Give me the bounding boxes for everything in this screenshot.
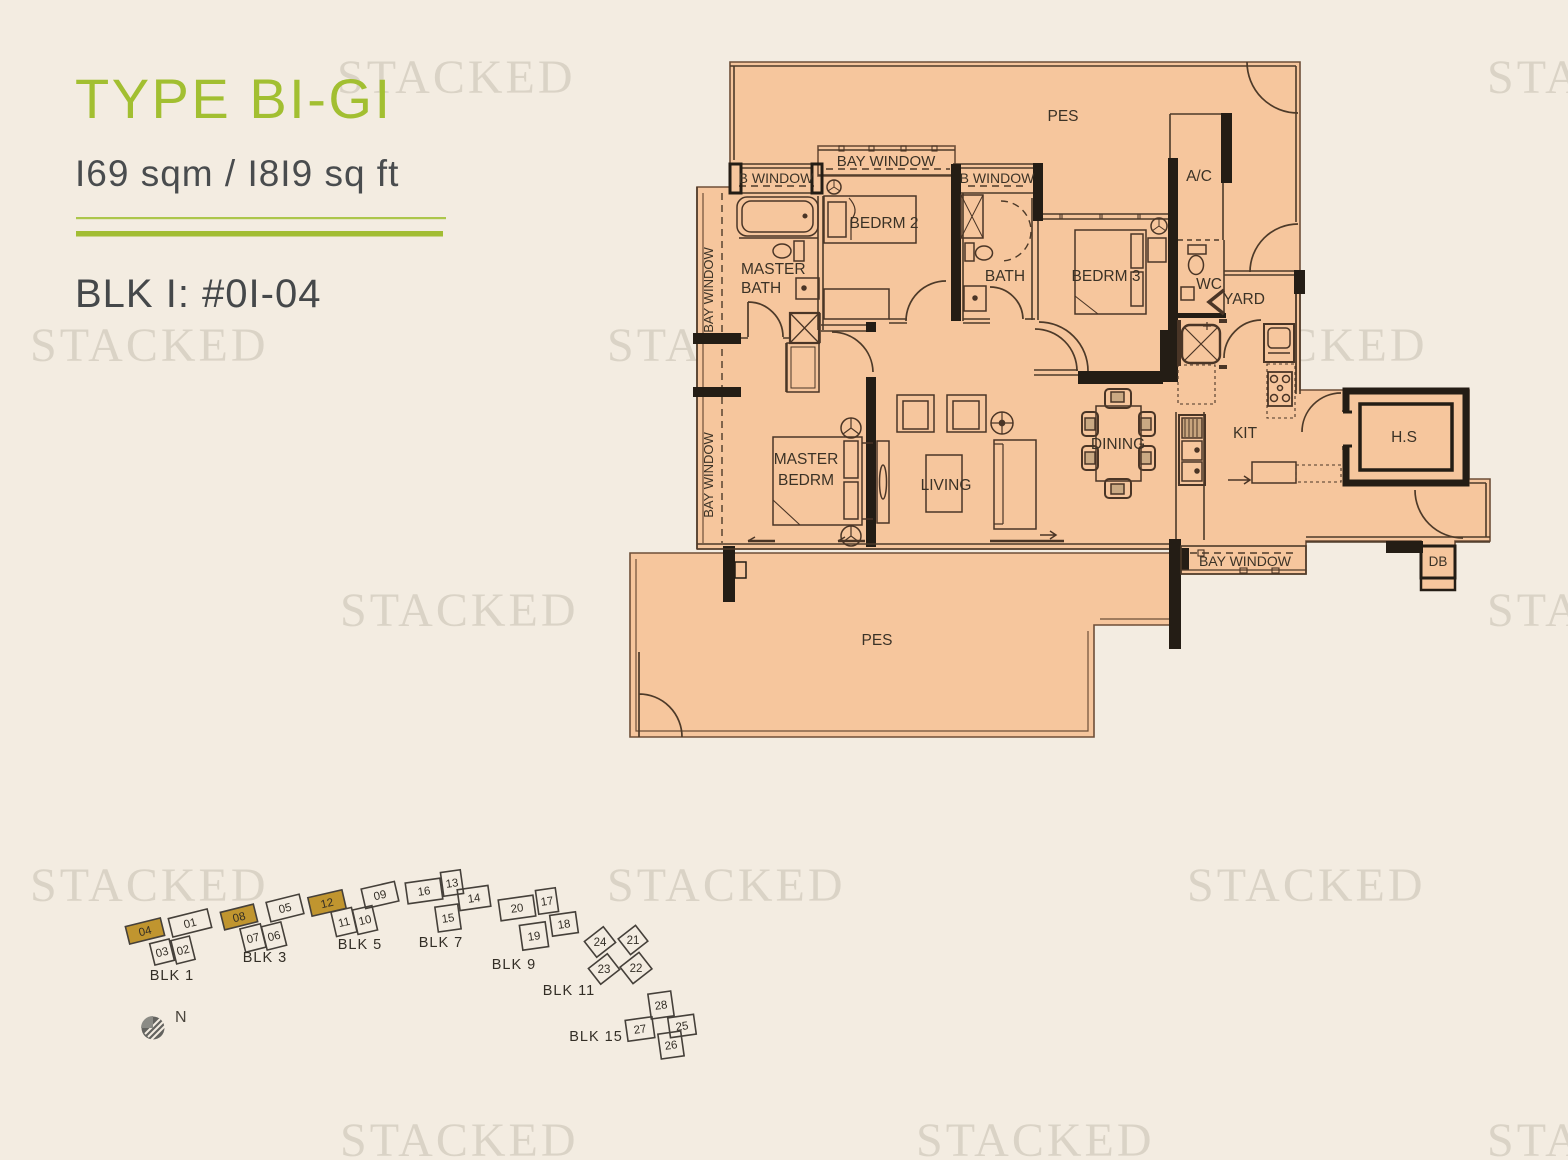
svg-text:WC: WC — [1196, 276, 1222, 293]
svg-text:27: 27 — [633, 1023, 647, 1037]
svg-text:STACKED: STACKED — [1487, 1114, 1568, 1160]
svg-text:10: 10 — [358, 914, 373, 929]
svg-text:STACKED: STACKED — [916, 1114, 1155, 1160]
svg-text:20: 20 — [510, 902, 524, 916]
svg-text:09: 09 — [373, 889, 388, 904]
svg-text:STACKED: STACKED — [1487, 51, 1568, 104]
svg-text:15: 15 — [441, 912, 455, 926]
svg-text:24: 24 — [594, 937, 607, 949]
svg-text:11: 11 — [337, 916, 351, 930]
svg-text:BAY WINDOW: BAY WINDOW — [1199, 553, 1292, 569]
svg-text:BEDRM 3: BEDRM 3 — [1072, 268, 1141, 285]
svg-text:07: 07 — [246, 932, 261, 947]
svg-text:02: 02 — [176, 944, 191, 959]
svg-text:BEDRM: BEDRM — [778, 472, 834, 489]
svg-text:01: 01 — [183, 917, 198, 932]
svg-text:21: 21 — [627, 935, 640, 947]
svg-text:05: 05 — [278, 902, 293, 917]
svg-text:A/C: A/C — [1186, 168, 1212, 185]
svg-text:06: 06 — [267, 930, 282, 945]
svg-text:KIT: KIT — [1233, 425, 1258, 442]
svg-text:STACKED: STACKED — [1187, 859, 1426, 912]
svg-text:B WINDOW: B WINDOW — [739, 170, 814, 186]
svg-text:STACKED: STACKED — [30, 319, 269, 372]
svg-text:STACKED: STACKED — [607, 859, 846, 912]
svg-text:STACKED: STACKED — [340, 584, 579, 637]
svg-text:BLK I: #0I-04: BLK I: #0I-04 — [75, 272, 321, 316]
svg-text:26: 26 — [664, 1039, 678, 1053]
svg-text:13: 13 — [445, 877, 459, 891]
svg-text:19: 19 — [527, 930, 541, 944]
svg-text:BLK 7: BLK 7 — [419, 935, 464, 951]
svg-text:22: 22 — [630, 963, 643, 975]
svg-text:PES: PES — [861, 632, 892, 649]
svg-text:BLK 15: BLK 15 — [569, 1029, 623, 1045]
svg-text:16: 16 — [417, 885, 431, 899]
svg-text:BAY WINDOW: BAY WINDOW — [701, 247, 716, 333]
svg-text:14: 14 — [467, 892, 482, 906]
svg-text:BAY WINDOW: BAY WINDOW — [837, 153, 936, 170]
svg-text:DB: DB — [1429, 554, 1448, 569]
svg-text:STACKED: STACKED — [340, 1114, 579, 1160]
svg-text:DINING: DINING — [1091, 436, 1145, 453]
svg-text:BEDRM 2: BEDRM 2 — [850, 215, 919, 232]
svg-text:TYPE BI-GI: TYPE BI-GI — [75, 67, 393, 130]
svg-text:STACKED: STACKED — [1487, 584, 1568, 637]
svg-text:STACKED: STACKED — [30, 859, 269, 912]
svg-text:MASTER: MASTER — [774, 451, 839, 468]
svg-text:MASTER: MASTER — [741, 261, 806, 278]
svg-text:18: 18 — [557, 918, 571, 932]
svg-text:BATH: BATH — [741, 280, 781, 297]
svg-text:23: 23 — [598, 964, 611, 976]
svg-text:BAY WINDOW: BAY WINDOW — [701, 432, 716, 518]
svg-text:BATH: BATH — [985, 268, 1025, 285]
svg-text:17: 17 — [540, 895, 554, 909]
svg-text:BLK 11: BLK 11 — [543, 983, 596, 999]
svg-text:PES: PES — [1047, 108, 1078, 125]
svg-text:28: 28 — [654, 999, 668, 1013]
svg-text:BLK 1: BLK 1 — [150, 968, 195, 984]
svg-text:H.S: H.S — [1391, 429, 1417, 446]
svg-text:BLK 9: BLK 9 — [492, 957, 537, 973]
svg-text:BLK 5: BLK 5 — [338, 937, 383, 953]
svg-text:LIVING: LIVING — [921, 477, 972, 494]
svg-text:YARD: YARD — [1223, 291, 1265, 308]
svg-text:N: N — [175, 1009, 187, 1026]
svg-text:B WINDOW: B WINDOW — [960, 170, 1035, 186]
svg-text:03: 03 — [155, 946, 170, 961]
svg-text:BLK 3: BLK 3 — [243, 950, 288, 966]
svg-text:I69 sqm / I8I9 sq ft: I69 sqm / I8I9 sq ft — [75, 153, 399, 194]
